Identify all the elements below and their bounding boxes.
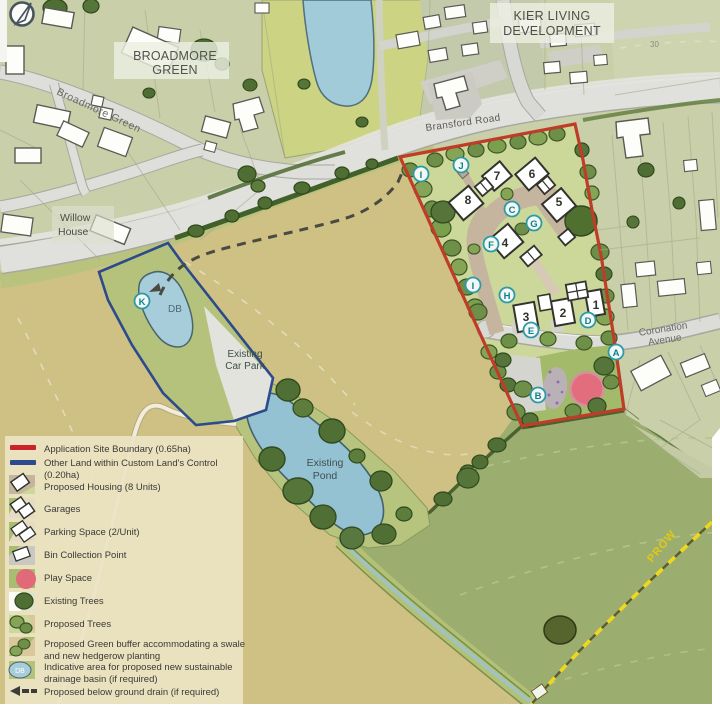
svg-text:F: F — [488, 240, 494, 251]
svg-text:Car Park: Car Park — [225, 361, 265, 372]
svg-text:8: 8 — [465, 193, 472, 207]
svg-text:BROADMORE: BROADMORE — [133, 49, 217, 63]
svg-text:Existing: Existing — [307, 457, 344, 469]
svg-text:(0.20ha): (0.20ha) — [44, 470, 79, 481]
svg-text:2: 2 — [560, 306, 567, 320]
svg-text:GREEN: GREEN — [152, 63, 197, 77]
svg-text:drainage basin (if required): drainage basin (if required) — [44, 674, 158, 685]
svg-text:D: D — [585, 316, 592, 327]
svg-text:Other Land within Custom Land': Other Land within Custom Land's Control — [44, 458, 217, 469]
svg-text:DEVELOPMENT: DEVELOPMENT — [503, 24, 601, 38]
svg-text:DB: DB — [15, 668, 25, 675]
svg-text:E: E — [528, 326, 534, 337]
svg-text:K: K — [139, 297, 146, 308]
svg-text:B: B — [535, 391, 542, 402]
svg-text:and new hedgerow planting: and new hedgerow planting — [44, 651, 160, 662]
svg-text:Indicative area for proposed n: Indicative area for proposed new sustain… — [44, 662, 233, 673]
svg-text:4: 4 — [502, 236, 509, 250]
svg-text:3: 3 — [523, 310, 530, 324]
svg-text:Play Space: Play Space — [44, 573, 92, 584]
svg-text:Proposed below ground drain (i: Proposed below ground drain (if required… — [44, 687, 219, 698]
svg-text:KIER LIVING: KIER LIVING — [514, 9, 591, 23]
svg-text:6: 6 — [529, 167, 536, 181]
svg-text:DB: DB — [168, 304, 182, 315]
svg-text:30: 30 — [650, 40, 659, 49]
svg-text:A: A — [613, 348, 620, 359]
svg-text:Parking Space (2/Unit): Parking Space (2/Unit) — [44, 527, 140, 538]
svg-text:5: 5 — [556, 195, 563, 209]
svg-text:C: C — [509, 205, 516, 216]
svg-text:Existing: Existing — [227, 349, 262, 360]
svg-text:Application Site Boundary (0.6: Application Site Boundary (0.65ha) — [44, 444, 191, 455]
svg-text:Bin Collection Point: Bin Collection Point — [44, 550, 127, 561]
svg-text:Pond: Pond — [313, 470, 338, 482]
svg-text:Proposed Green buffer accommod: Proposed Green buffer accommodating a sw… — [44, 639, 245, 650]
svg-text:1: 1 — [593, 298, 600, 312]
svg-text:Proposed Housing (8 Units): Proposed Housing (8 Units) — [44, 482, 161, 493]
svg-text:J: J — [458, 161, 463, 172]
svg-text:Garages: Garages — [44, 504, 81, 515]
svg-text:Existing Trees: Existing Trees — [44, 596, 104, 607]
svg-text:G: G — [530, 219, 537, 230]
svg-text:Proposed Trees: Proposed Trees — [44, 619, 111, 630]
svg-text:Willow: Willow — [60, 212, 91, 224]
svg-text:House: House — [58, 226, 89, 238]
svg-text:I: I — [472, 281, 475, 292]
svg-text:7: 7 — [494, 169, 501, 183]
svg-text:I: I — [420, 170, 423, 181]
svg-text:H: H — [504, 291, 511, 302]
